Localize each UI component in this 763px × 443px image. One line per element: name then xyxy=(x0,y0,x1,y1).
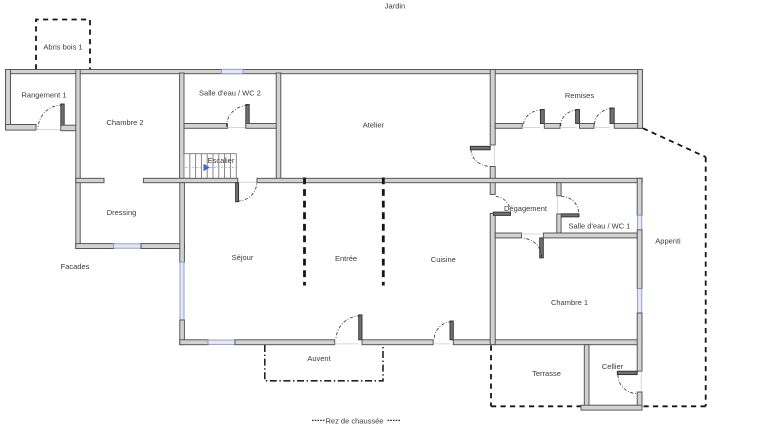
svg-text:Appenti: Appenti xyxy=(655,237,681,246)
svg-text:Chambre 2: Chambre 2 xyxy=(106,118,143,127)
svg-text:Abris bois 1: Abris bois 1 xyxy=(43,42,82,51)
svg-text:Cuisine: Cuisine xyxy=(431,255,456,264)
svg-text:Atelier: Atelier xyxy=(363,121,385,130)
svg-text:Cellier: Cellier xyxy=(602,362,624,371)
svg-text:Séjour: Séjour xyxy=(232,253,254,262)
svg-text:Dégagement: Dégagement xyxy=(504,204,548,213)
svg-text:Jardin: Jardin xyxy=(385,2,405,11)
svg-text:Escalier: Escalier xyxy=(208,156,235,165)
svg-text:Auvent: Auvent xyxy=(307,354,331,363)
svg-text:Remises: Remises xyxy=(565,91,594,100)
svg-text:Facades: Facades xyxy=(61,262,90,271)
svg-text:Dressing: Dressing xyxy=(107,208,137,217)
svg-text:Salle d'eau / WC 1: Salle d'eau / WC 1 xyxy=(569,222,631,231)
svg-text:Rez de chaussée: Rez de chaussée xyxy=(326,416,384,425)
svg-text:Salle d'eau / WC 2: Salle d'eau / WC 2 xyxy=(199,88,261,97)
svg-text:Terrasse: Terrasse xyxy=(532,369,561,378)
svg-text:Entrée: Entrée xyxy=(335,254,357,263)
svg-text:Chambre 1: Chambre 1 xyxy=(551,298,588,307)
svg-text:Rangement 1: Rangement 1 xyxy=(21,90,66,99)
